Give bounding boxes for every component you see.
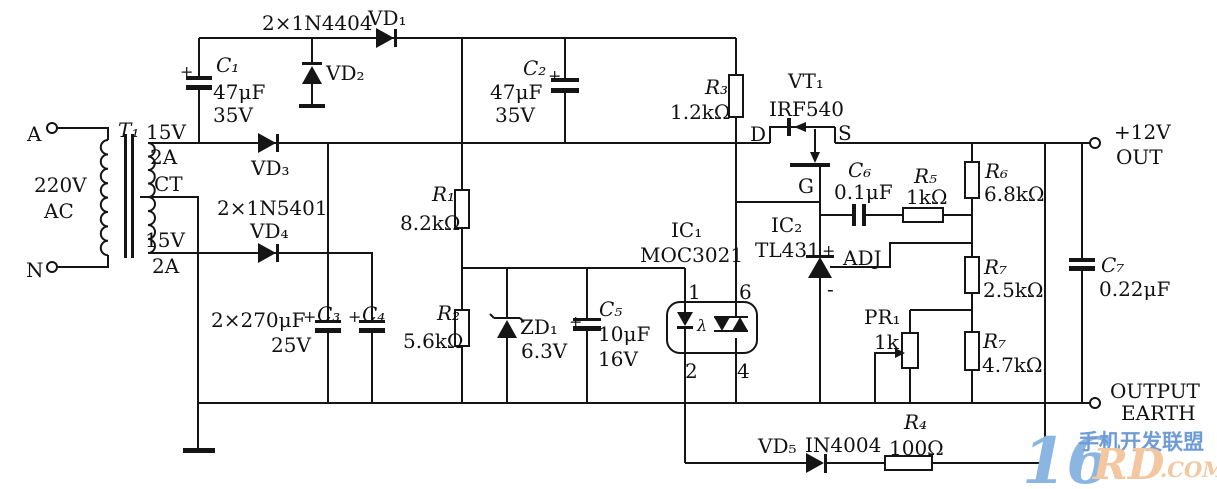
label-ic1-pin1: 1 (688, 280, 701, 304)
label-drain: D (750, 122, 766, 146)
label-led-lambda: λ (696, 316, 707, 335)
label-c5-value: 10μF (598, 322, 650, 346)
label-pr1-ref: PR₁ (864, 305, 901, 329)
label-vd2-ref: VD₂ (325, 61, 365, 85)
label-c6-value: 0.1μF (834, 180, 893, 204)
label-r4-value: 100Ω (889, 436, 944, 460)
label-vd4-part: 2×1N5401 (217, 196, 328, 220)
label-out: OUT (1116, 145, 1163, 169)
label-vd5-part: IN4004 (805, 433, 881, 457)
label-zd1-value: 6.3V (521, 339, 568, 363)
label-vd3-ref: VD₃ (250, 156, 290, 180)
label-r3-ref: R₃ (704, 75, 728, 99)
label-out-12v: +12V (1114, 120, 1171, 144)
label-ic2-part: TL431 (755, 238, 820, 262)
label-pr1-value: 1k (874, 330, 900, 354)
label-zd1-ref: ZD₁ (520, 315, 558, 339)
label-output: OUTPUT (1110, 379, 1201, 403)
label-vd4-ref: VD₄ (249, 219, 289, 243)
label-c4-ref: C₄ (362, 302, 385, 326)
label-ic1-pin4: 4 (737, 359, 750, 383)
label-earth: EARTH (1121, 401, 1196, 425)
label-r3-value: 1.2kΩ (670, 100, 731, 124)
label-primary-ac: AC (43, 199, 74, 223)
label-c7-value: 0.22μF (1099, 277, 1171, 301)
optocoupler-ic1 (667, 302, 757, 353)
terminal-12v-out (1090, 138, 1100, 148)
label-gate: G (798, 174, 814, 198)
label-terminal-a: A (26, 122, 42, 146)
label-r7a-ref: R₇ (983, 255, 1007, 279)
zener-zd1 (490, 314, 524, 338)
watermark-com: .COM (1160, 457, 1217, 482)
label-c2-plus: + (548, 66, 561, 85)
resistor-r5 (903, 208, 943, 222)
label-r1-ref: R₁ (431, 182, 455, 206)
label-c1-plus: + (180, 62, 193, 81)
label-c34-value: 2×270μF (211, 308, 306, 332)
label-vd1-ref: VD₁ (367, 6, 407, 30)
label-c6-ref: C₆ (848, 158, 871, 182)
primary-winding (101, 140, 108, 255)
label-ic1-pin2: 2 (685, 359, 698, 383)
label-c1-value: 47μF (213, 80, 265, 104)
diode-vd3 (258, 133, 279, 153)
label-r7b-value: 4.7kΩ (982, 353, 1043, 377)
watermark: 16 手机开发联盟 RD .COM (1022, 424, 1217, 489)
resistor-r3 (729, 75, 743, 117)
label-c4-plus: + (348, 307, 361, 326)
label-ic2-minus: - (827, 277, 834, 301)
label-terminal-n: N (26, 258, 44, 282)
label-source: S (838, 121, 852, 145)
label-sec-top-v: 15V (146, 120, 186, 144)
label-r1-value: 8.2kΩ (400, 211, 461, 235)
label-c3-plus: + (303, 307, 316, 326)
label-sec-bot-v: 15V (145, 228, 185, 252)
label-r2-ref: R₂ (436, 301, 460, 325)
label-c5-rating: 16V (598, 347, 638, 371)
label-c2-rating: 35V (495, 103, 535, 127)
label-vd5-ref: VD₅ (757, 434, 797, 458)
capacitor-c6 (852, 204, 866, 226)
label-c2-value: 47μF (490, 80, 542, 104)
label-r7a-value: 2.5kΩ (983, 278, 1044, 302)
label-r2-value: 5.6kΩ (403, 329, 464, 353)
label-r4-ref: R₄ (903, 410, 927, 434)
core-bar (124, 134, 127, 258)
label-ic1-pin6: 6 (739, 280, 752, 304)
label-ic1-part: MOC3021 (640, 243, 743, 267)
label-vt1-part: IRF540 (769, 97, 844, 121)
label-c5-ref: C₅ (599, 297, 622, 321)
gate-plate (790, 163, 830, 167)
resistor-r7b (965, 332, 979, 370)
label-r6-value: 6.8kΩ (984, 182, 1045, 206)
label-r6-ref: R₆ (984, 159, 1008, 183)
diode-vd4 (258, 243, 279, 263)
circuit-schematic: A 220V AC N T₁ 15V 2A CT 15V 2A 2×1N4404… (0, 0, 1217, 489)
core-bar (131, 134, 134, 258)
wires (140, 38, 1090, 463)
transformer-t1 (47, 123, 155, 272)
label-c7-ref: C₇ (1101, 253, 1124, 277)
label-r5-value: 1kΩ (906, 185, 947, 209)
label-c5-plus: + (569, 312, 582, 331)
label-sec-bot-a: 2A (152, 254, 180, 278)
label-primary-voltage: 220V (34, 173, 87, 197)
capacitor-c7 (1069, 258, 1095, 271)
label-ic1-ref: IC₁ (671, 218, 702, 242)
resistor-r7a (965, 257, 979, 293)
watermark-rd: RD (1092, 440, 1165, 489)
terminal-a (47, 123, 57, 133)
mosfet-vt1 (770, 118, 835, 167)
label-ic2-ref: IC₂ (771, 213, 802, 237)
label-c3-ref: C₃ (317, 302, 340, 326)
label-vd1-part: 2×1N4404 (262, 11, 373, 35)
label-c2-ref: C₂ (523, 56, 546, 80)
resistor-r6 (965, 162, 979, 198)
terminal-output-earth (1090, 398, 1100, 408)
label-ic2-plus: + (822, 241, 835, 260)
label-vt1-ref: VT₁ (787, 69, 824, 93)
ground-symbol (183, 448, 215, 453)
diode-vd1 (376, 28, 397, 48)
label-adj: ADJ (842, 246, 882, 270)
terminal-n (47, 262, 57, 272)
label-center-tap: CT (154, 172, 183, 196)
label-sec-top-a: 2A (150, 145, 178, 169)
label-c1-rating: 35V (213, 103, 253, 127)
label-r7b-ref: R₇ (982, 329, 1006, 353)
label-t1-ref: T₁ (118, 118, 139, 142)
label-c1-ref: C₁ (216, 53, 239, 77)
label-c34-rating: 25V (271, 333, 311, 357)
